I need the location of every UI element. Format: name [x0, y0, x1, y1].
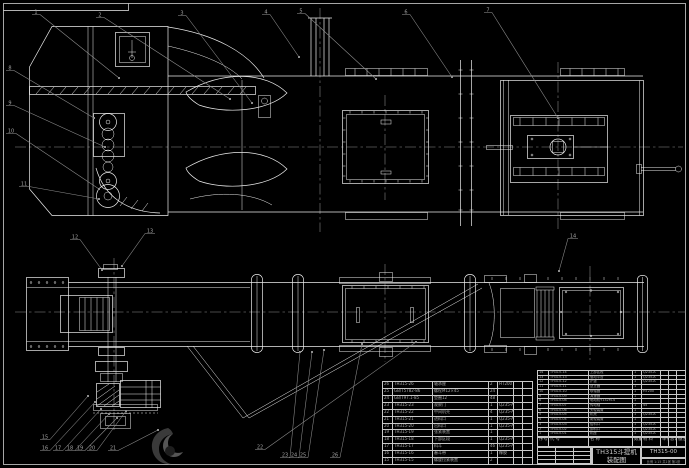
part-balloon: 13 — [121, 229, 155, 268]
balloon-number: 3 — [180, 11, 183, 17]
bom-row: 18TH315-18下部区段1Q235-A — [383, 436, 532, 443]
drawing-number-box: TH315-00 — [641, 447, 686, 458]
bom-cell — [669, 432, 677, 436]
part-balloon: 6 — [402, 10, 453, 79]
balloon-number: 16 — [42, 446, 48, 452]
part-balloon: 24 — [289, 351, 313, 459]
elevation-view — [30, 18, 682, 226]
part-balloon: 16 — [40, 401, 96, 452]
balloon-number: 21 — [110, 446, 116, 452]
part-balloon: 25 — [298, 349, 325, 459]
balloon-number: 9 — [8, 101, 11, 107]
signature-cell — [574, 460, 591, 464]
bom-row: 22TH315-22中间机壳4Q235-A — [383, 409, 532, 416]
balloon-number: 23 — [282, 453, 288, 459]
balloon-number: 20 — [89, 446, 95, 452]
balloon-number: 17 — [55, 446, 61, 452]
signature-cell — [538, 460, 556, 464]
bom-row: 15TH315-15螺旋拉紧装置2 — [383, 457, 532, 464]
signature-grid — [537, 447, 592, 465]
balloon-number: 25 — [300, 453, 306, 459]
bom-row: 16TH315-16畚斗带1橡胶 — [383, 450, 532, 457]
balloon-number: 12 — [72, 235, 78, 241]
balloon-number: 11 — [21, 182, 27, 188]
part-balloon: 8 — [6, 66, 95, 120]
cad-drawing-sheet: 1234567891011121314151617181920212223242… — [0, 0, 689, 468]
bom-cell — [514, 458, 523, 464]
bom-table-left: 26TH315-26轴承座2HT20025GB/T5782-86螺栓M12×45… — [382, 381, 533, 465]
balloon-number: 14 — [570, 234, 576, 240]
part-balloon: 21 — [108, 429, 159, 452]
bom-cell: 单件 — [661, 438, 669, 446]
bom-cell: 备注 — [677, 438, 685, 446]
bom-cell: 1 — [538, 432, 549, 436]
part-balloon: 7 — [484, 8, 559, 120]
drawing-subtitle: 装配图 — [593, 456, 640, 464]
title-block: TH315斗提机 装配图 — [592, 447, 641, 465]
bom-row: 25GB/T5782-86螺栓M12×4524 — [383, 388, 532, 395]
bom-header-row: 序号代 号名 称数量材 料单件总计备注 — [537, 437, 686, 447]
centerlines — [15, 8, 686, 430]
drawing-info: 比例 1:15 共1张 第1张 — [647, 460, 680, 464]
bom-cell: TH315-01 — [549, 432, 589, 436]
bom-row: 20TH315-20出料口1Q235-A — [383, 423, 532, 430]
balloon-number: 26 — [332, 453, 338, 459]
bom-cell: 数量 — [633, 438, 642, 446]
balloon-number: 7 — [486, 8, 489, 14]
bom-cell: Q235-A — [642, 432, 661, 436]
bom-row: 24GB/T97.1-85垫圈1248 — [383, 395, 532, 402]
bom-cell: 1 — [633, 432, 642, 436]
part-balloon: 9 — [6, 101, 106, 149]
bom-table-right: 14TH315-14上部区段1Q235-A13TH315-13驱动平台1Q235… — [537, 370, 686, 437]
bom-row: 23TH315-23观察门1Q235-A — [383, 402, 532, 409]
bom-row: 19TH315-19张紧装置1 — [383, 429, 532, 436]
part-balloon: 1 — [32, 10, 120, 80]
balloon-number: 8 — [8, 66, 11, 72]
bom-row: 序号代 号名 称数量材 料单件总计备注 — [538, 438, 685, 446]
balloon-number: 2 — [98, 13, 101, 19]
balloon-number: 10 — [8, 129, 14, 135]
part-balloon: 5 — [297, 9, 377, 81]
balloon-number: 1 — [34, 10, 37, 16]
balloon-number: 5 — [299, 9, 302, 15]
part-balloon: 12 — [70, 235, 103, 272]
balloon-number: 13 — [147, 229, 153, 235]
signature-cell — [556, 460, 574, 464]
bom-cell: 名 称 — [589, 438, 633, 446]
part-balloon: 26 — [330, 343, 363, 459]
part-balloon: 2 — [96, 13, 231, 101]
balloon-number: 15 — [42, 435, 48, 441]
part-balloon: 23 — [280, 351, 301, 459]
bom-row: 1TH315-01机座1Q235-A — [538, 431, 685, 436]
part-balloon: 14 — [558, 234, 578, 273]
part-balloon: 15 — [40, 395, 89, 441]
bom-cell — [498, 458, 514, 464]
bom-row: 21TH315-21进料口1Q235-A — [383, 416, 532, 423]
balloon-number: 18 — [67, 446, 73, 452]
bom-cell: 螺旋拉紧装置 — [433, 458, 489, 464]
bom-cell: 机座 — [589, 432, 633, 436]
bom-cell: 代 号 — [549, 438, 589, 446]
bom-cell — [523, 458, 532, 464]
balloon-number: 6 — [404, 10, 407, 16]
bom-cell: 2 — [489, 458, 498, 464]
bom-cell: TH315-15 — [393, 458, 433, 464]
bom-cell — [677, 432, 685, 436]
bom-cell: 总计 — [669, 438, 677, 446]
balloon-number: 24 — [291, 453, 297, 459]
bom-cell: 15 — [383, 458, 393, 464]
ink-swirl-stamp — [152, 428, 183, 464]
drawing-number: TH315-00 — [650, 449, 677, 455]
bom-cell: 序号 — [538, 438, 549, 446]
drawing-info-box: 比例 1:15 共1张 第1张 — [641, 458, 686, 465]
balloon-number: 22 — [257, 445, 263, 451]
bom-cell: 材 料 — [642, 438, 661, 446]
bom-cell — [661, 432, 669, 436]
balloon-number: 4 — [264, 10, 267, 16]
part-balloon: 4 — [262, 10, 300, 59]
bom-row: 17TH315-17料斗46Q235-A — [383, 443, 532, 450]
balloon-number: 19 — [77, 446, 83, 452]
